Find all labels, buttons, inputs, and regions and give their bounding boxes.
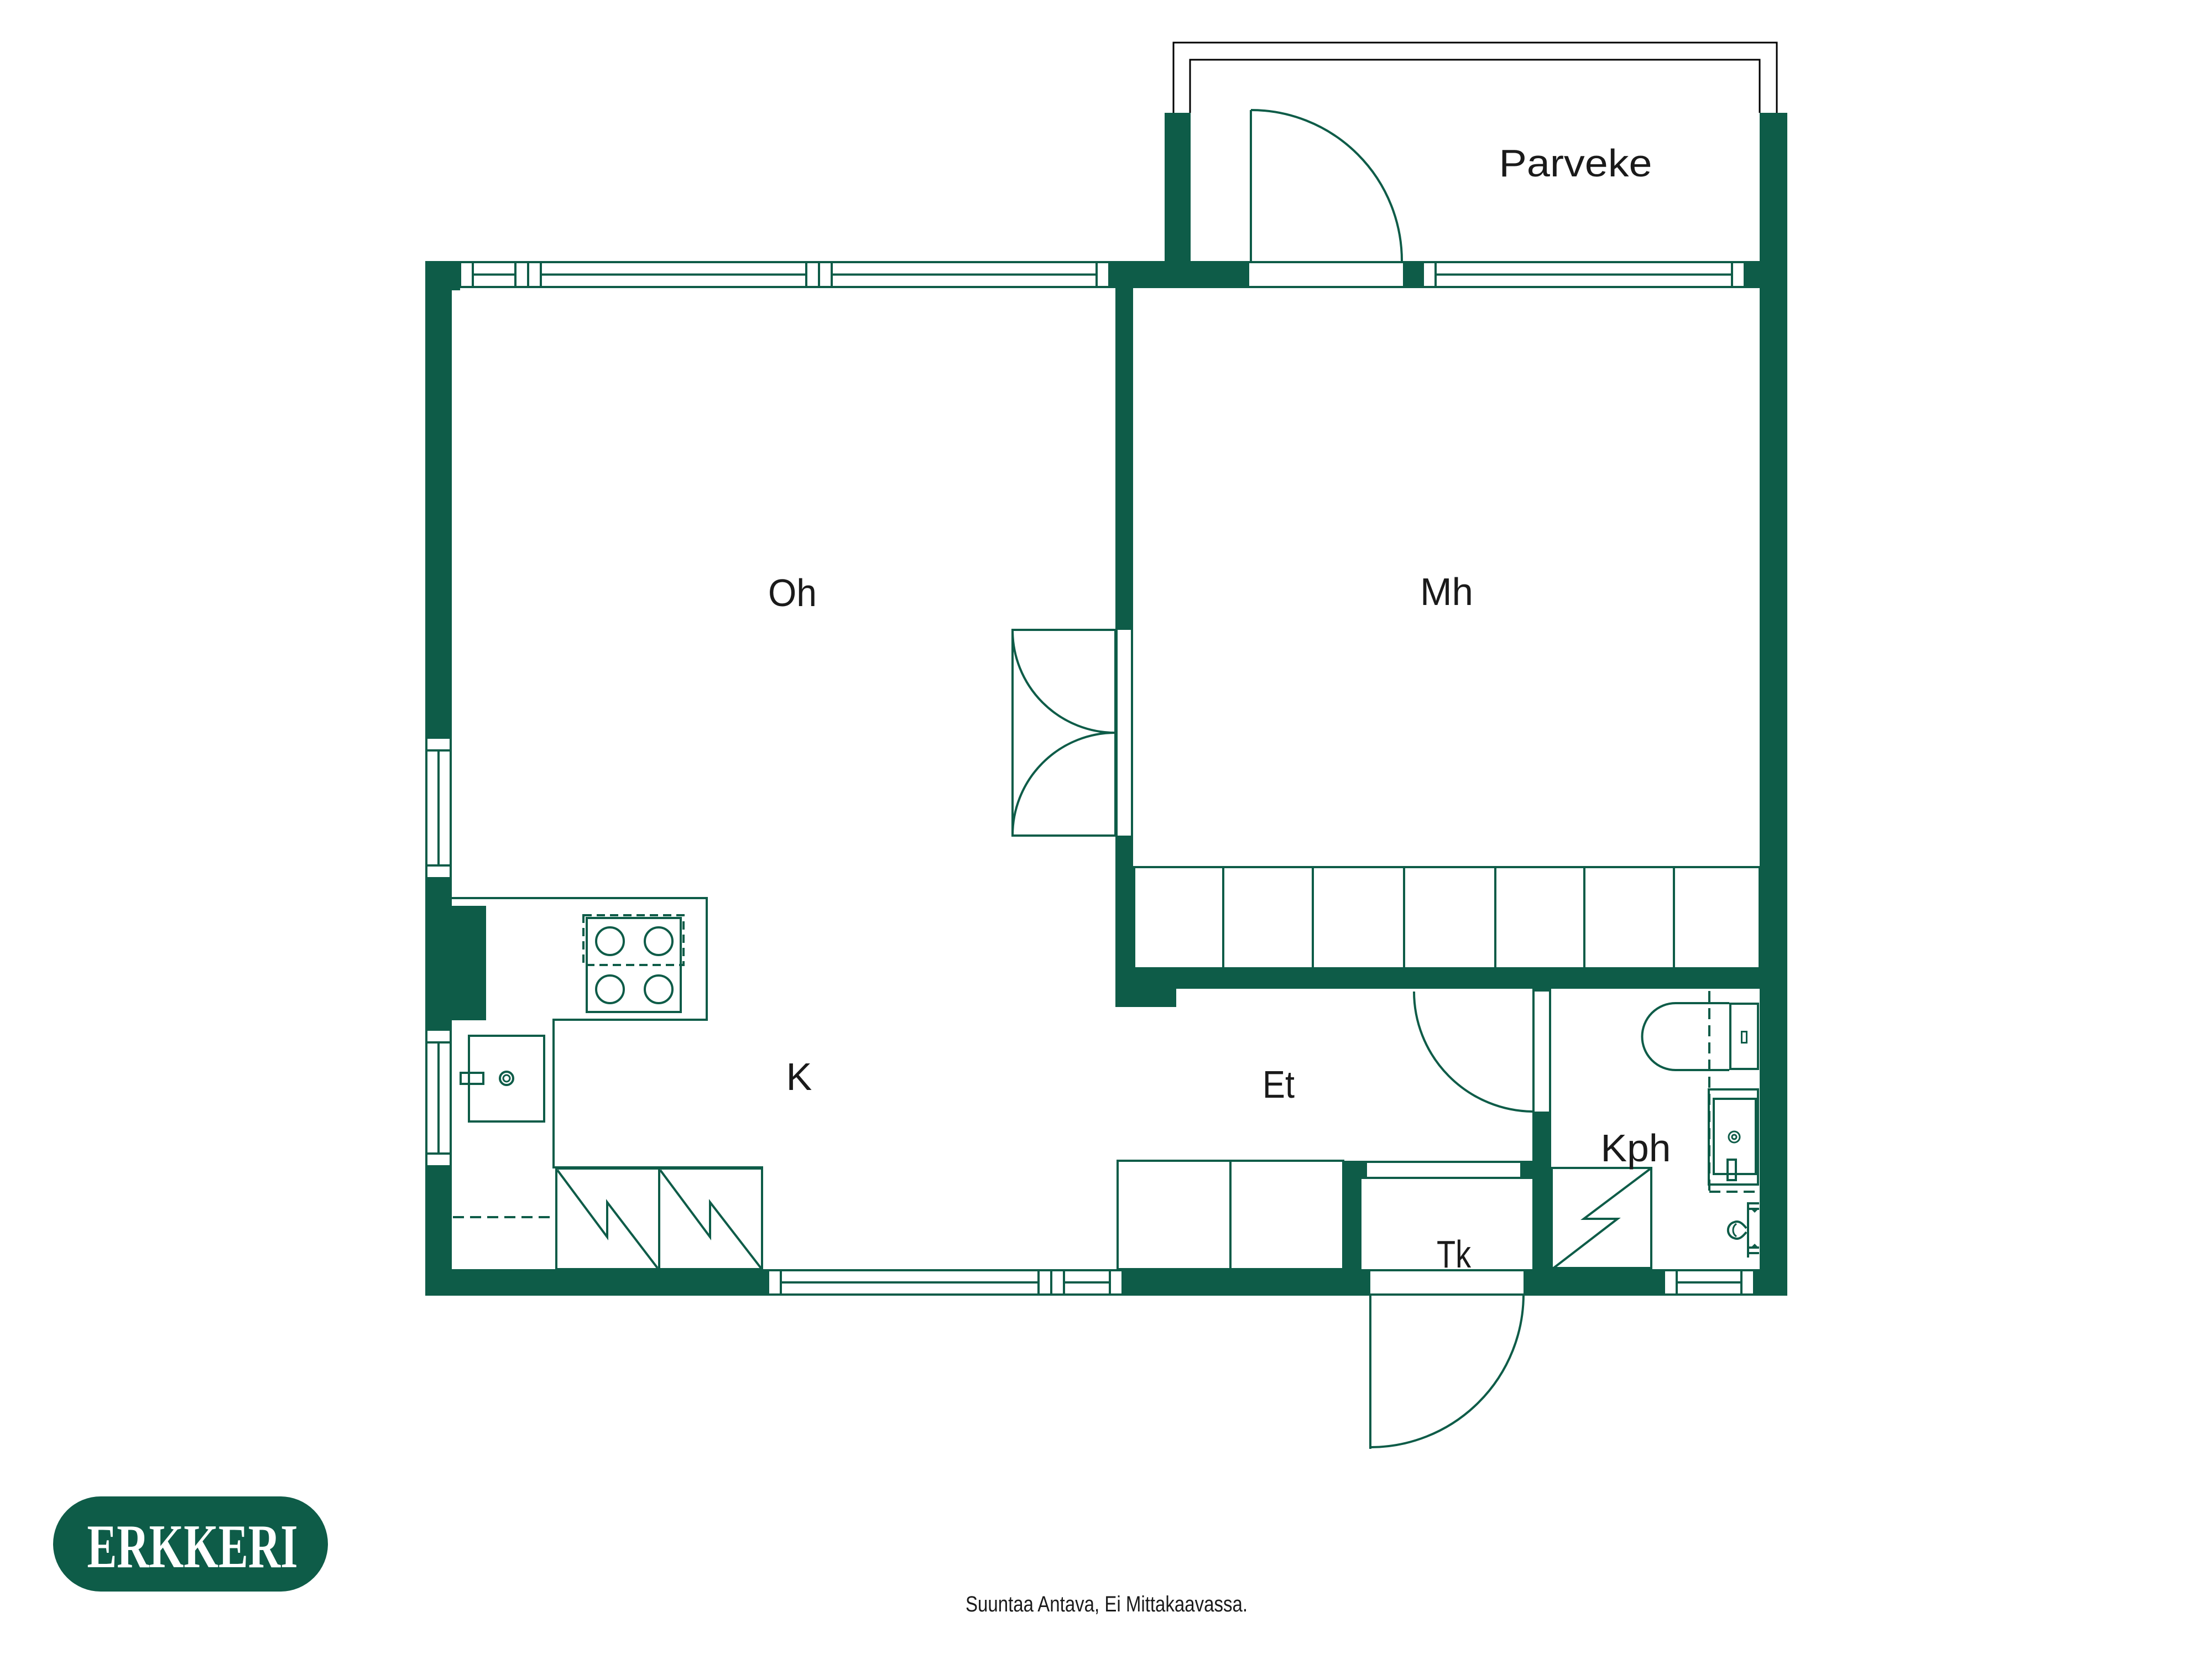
svg-text:Mh: Mh: [1420, 570, 1473, 613]
svg-text:ERKKERI: ERKKERI: [87, 1512, 298, 1581]
svg-text:Et: Et: [1262, 1063, 1295, 1106]
svg-text:Tk: Tk: [1437, 1233, 1472, 1276]
svg-text:Parveke: Parveke: [1499, 142, 1652, 185]
svg-text:K: K: [786, 1055, 812, 1098]
svg-text:Kph: Kph: [1601, 1126, 1671, 1170]
svg-text:Suuntaa Antava, Ei Mittakaavas: Suuntaa Antava, Ei Mittakaavassa.: [966, 1592, 1248, 1616]
svg-text:Oh: Oh: [768, 571, 817, 614]
